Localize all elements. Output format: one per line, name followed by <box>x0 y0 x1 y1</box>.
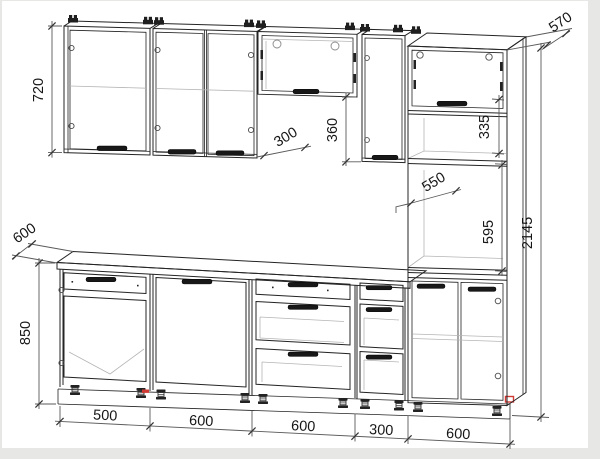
photo-frame: 720 600 850 300 360 <box>0 0 600 459</box>
dim-label-hood-offset: 360 <box>325 118 341 142</box>
dim-label-base-height: 850 <box>18 321 34 345</box>
dim-label-width-2: 600 <box>189 413 214 430</box>
dim-label-width-4: 300 <box>369 422 394 439</box>
kitchen-technical-drawing: 720 600 850 300 360 <box>0 0 600 459</box>
dim-label-upper-niche: 335 <box>477 115 493 139</box>
dim-label-wall-height: 720 <box>31 78 47 102</box>
dim-label-width-3: 600 <box>291 418 316 435</box>
dim-label-total-height: 2145 <box>520 217 536 249</box>
dim-label-width-1: 500 <box>93 407 118 424</box>
dim-label-oven-height: 595 <box>481 220 497 244</box>
dim-label-width-5: 600 <box>446 426 471 443</box>
red-marker <box>142 390 149 393</box>
